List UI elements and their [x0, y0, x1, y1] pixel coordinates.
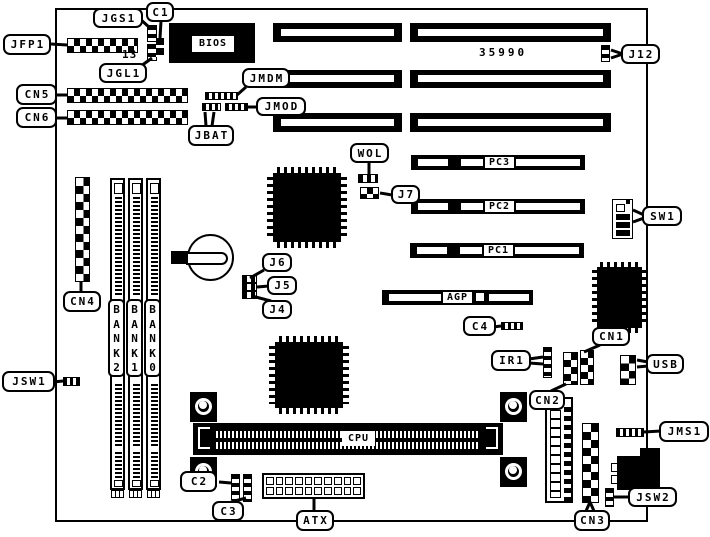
motherboard-diagram: 13 BIOS 35990 PC3 PC2 PC1 AGP [0, 0, 710, 537]
callout-c4: C4 [463, 316, 496, 336]
callout-j7: J7 [391, 185, 420, 204]
callout-jbat: JBAT [188, 125, 234, 146]
callout-cn1: CN1 [592, 327, 630, 346]
callout-j4: J4 [262, 300, 292, 319]
callout-jfp1: JFP1 [3, 34, 51, 55]
bank1-label: BANK1 [126, 299, 143, 377]
callout-c2: C2 [180, 471, 217, 492]
callout-wol: WOL [350, 143, 389, 163]
callout-cn2: CN2 [529, 390, 565, 410]
callout-sw1: SW1 [642, 206, 682, 226]
callout-jsw1: JSW1 [2, 371, 55, 392]
callout-j5: J5 [267, 276, 297, 295]
callout-j12: J12 [621, 44, 660, 64]
callout-jmod: JMOD [256, 97, 306, 116]
callout-jsw2: JSW2 [628, 487, 677, 507]
callout-usb: USB [646, 354, 684, 374]
callout-jms1: JMS1 [659, 421, 709, 442]
bank0-label: BANK0 [144, 299, 161, 377]
callout-jmdm: JMDM [242, 68, 290, 88]
bank2-label: BANK2 [108, 299, 125, 377]
callout-cn4: CN4 [63, 291, 101, 312]
callout-c1: C1 [146, 2, 174, 22]
callout-cn3: CN3 [574, 510, 610, 531]
callout-atx: ATX [296, 510, 334, 531]
callout-jgl1: JGL1 [99, 63, 147, 83]
callout-cn6: CN6 [16, 107, 57, 128]
callout-ir1: IR1 [491, 350, 531, 371]
callout-cn5: CN5 [16, 84, 57, 105]
callout-j6: J6 [262, 253, 292, 272]
callout-c3: C3 [212, 501, 244, 521]
callout-jgs1: JGS1 [93, 8, 143, 28]
